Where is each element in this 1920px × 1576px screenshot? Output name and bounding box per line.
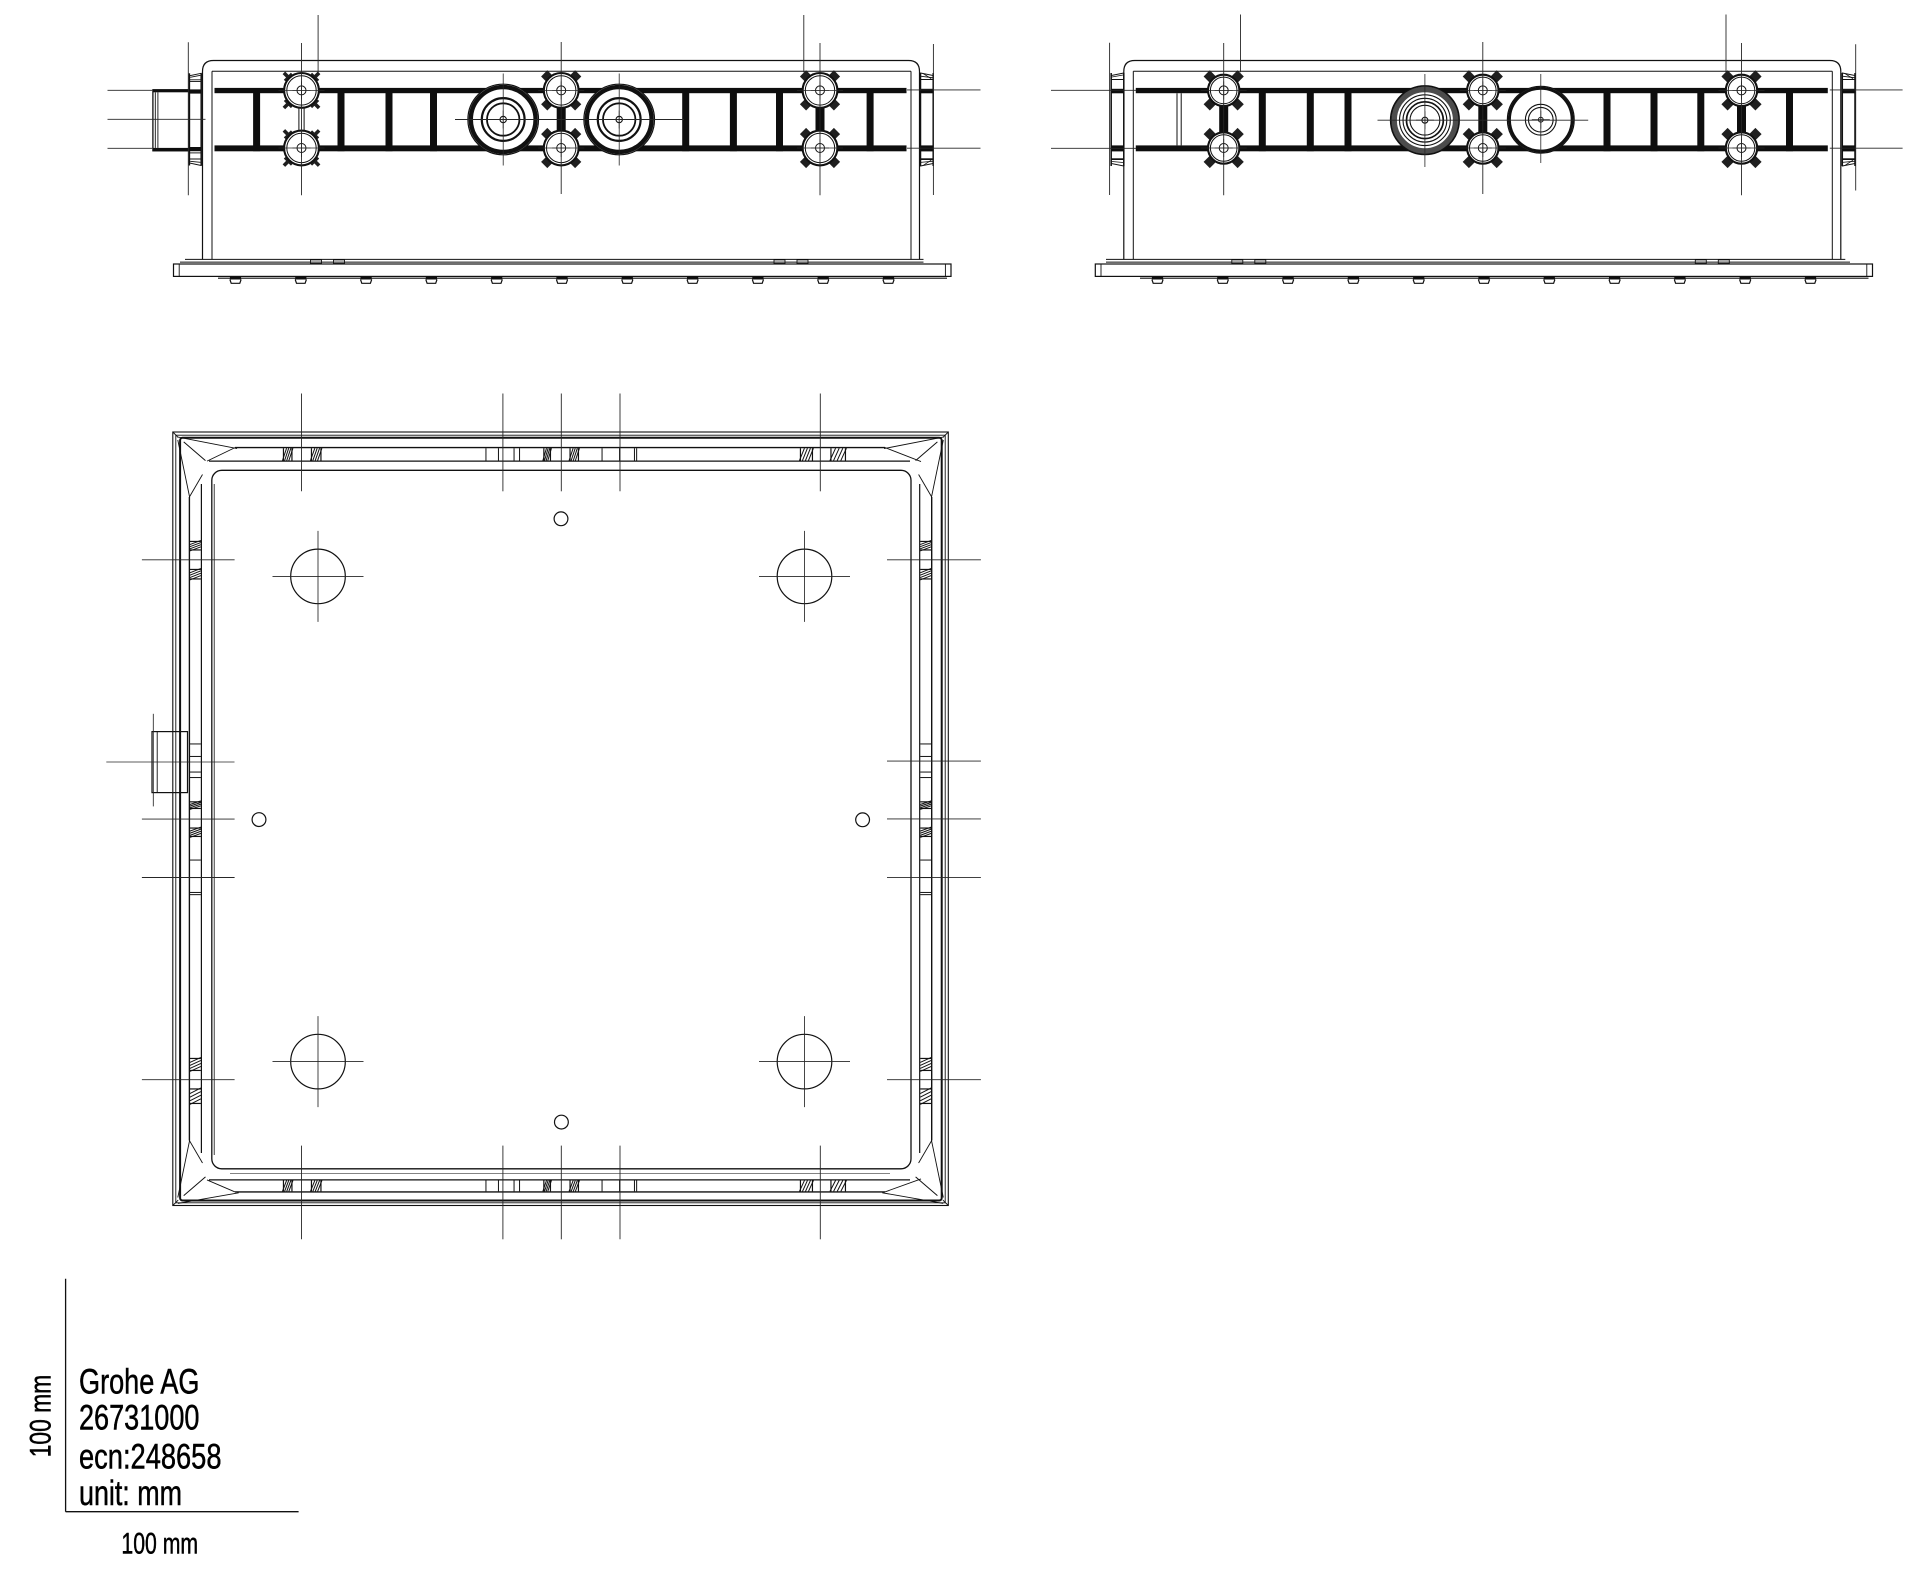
svg-text:26731000: 26731000: [79, 1399, 200, 1438]
svg-text:100 mm: 100 mm: [24, 1375, 57, 1458]
svg-text:Grohe AG: Grohe AG: [79, 1363, 200, 1402]
svg-text:unit: mm: unit: mm: [79, 1474, 182, 1513]
svg-text:ecn:248658: ecn:248658: [79, 1437, 222, 1476]
svg-text:100 mm: 100 mm: [121, 1528, 198, 1561]
